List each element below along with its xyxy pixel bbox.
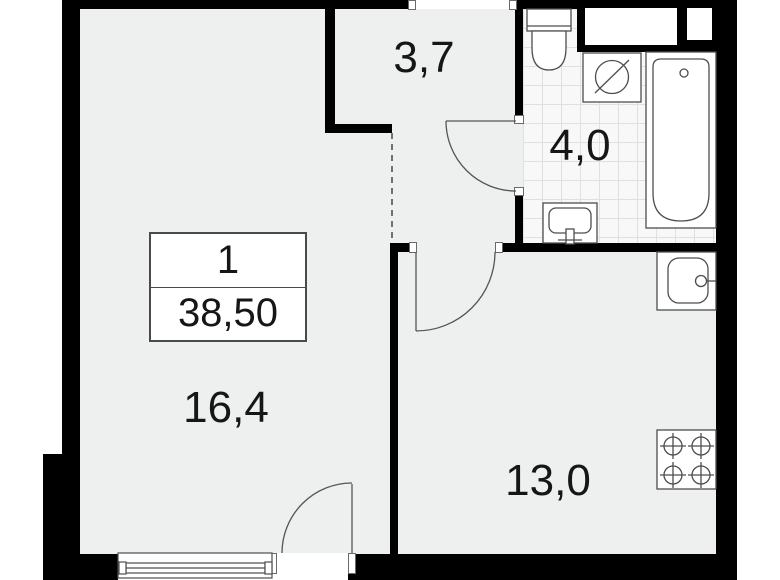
wall-bathroom-south bbox=[503, 243, 716, 252]
title-block: 1 38,50 bbox=[149, 232, 307, 342]
wall-kitchen-west bbox=[390, 243, 398, 554]
wall-kitchen-north-stub bbox=[390, 243, 409, 252]
kitchen-area-label: 13,0 bbox=[505, 456, 591, 506]
jamb-kitchen-door-left bbox=[409, 242, 417, 253]
ventilation-shaft-1 bbox=[585, 8, 677, 45]
balcony-door-opening bbox=[277, 553, 348, 580]
living-room-area-label: 16,4 bbox=[183, 383, 269, 433]
title-block-total-area: 38,50 bbox=[151, 288, 305, 341]
wall-top-mid bbox=[517, 0, 577, 9]
jamb-balcony-left bbox=[269, 553, 277, 574]
wall-left-upper bbox=[62, 0, 80, 454]
ventilation-shaft-2 bbox=[687, 8, 712, 40]
jamb-entrance-left bbox=[408, 0, 416, 10]
jamb-kitchen-door-right bbox=[495, 242, 503, 253]
wall-bathroom-west-upper bbox=[515, 9, 523, 116]
floor-plan: 3,7 4,0 16,4 13,0 1 38,50 bbox=[0, 0, 780, 580]
wall-right bbox=[716, 0, 737, 580]
hallway-area-label: 3,7 bbox=[393, 33, 454, 83]
title-block-room-count: 1 bbox=[151, 234, 305, 288]
wall-top-left bbox=[62, 0, 408, 9]
wall-hallway-south bbox=[325, 124, 392, 133]
jamb-bathroom-door-bottom bbox=[514, 187, 524, 196]
wall-hallway-west bbox=[325, 0, 335, 133]
jamb-entrance-right bbox=[509, 0, 517, 10]
bathroom-area-label: 4,0 bbox=[549, 121, 610, 171]
wall-left-lower bbox=[43, 454, 80, 580]
jamb-bathroom-door-top bbox=[514, 115, 524, 124]
window-opening bbox=[118, 553, 277, 580]
jamb-balcony-right bbox=[348, 553, 356, 574]
wall-bathroom-west-lower bbox=[515, 196, 523, 243]
